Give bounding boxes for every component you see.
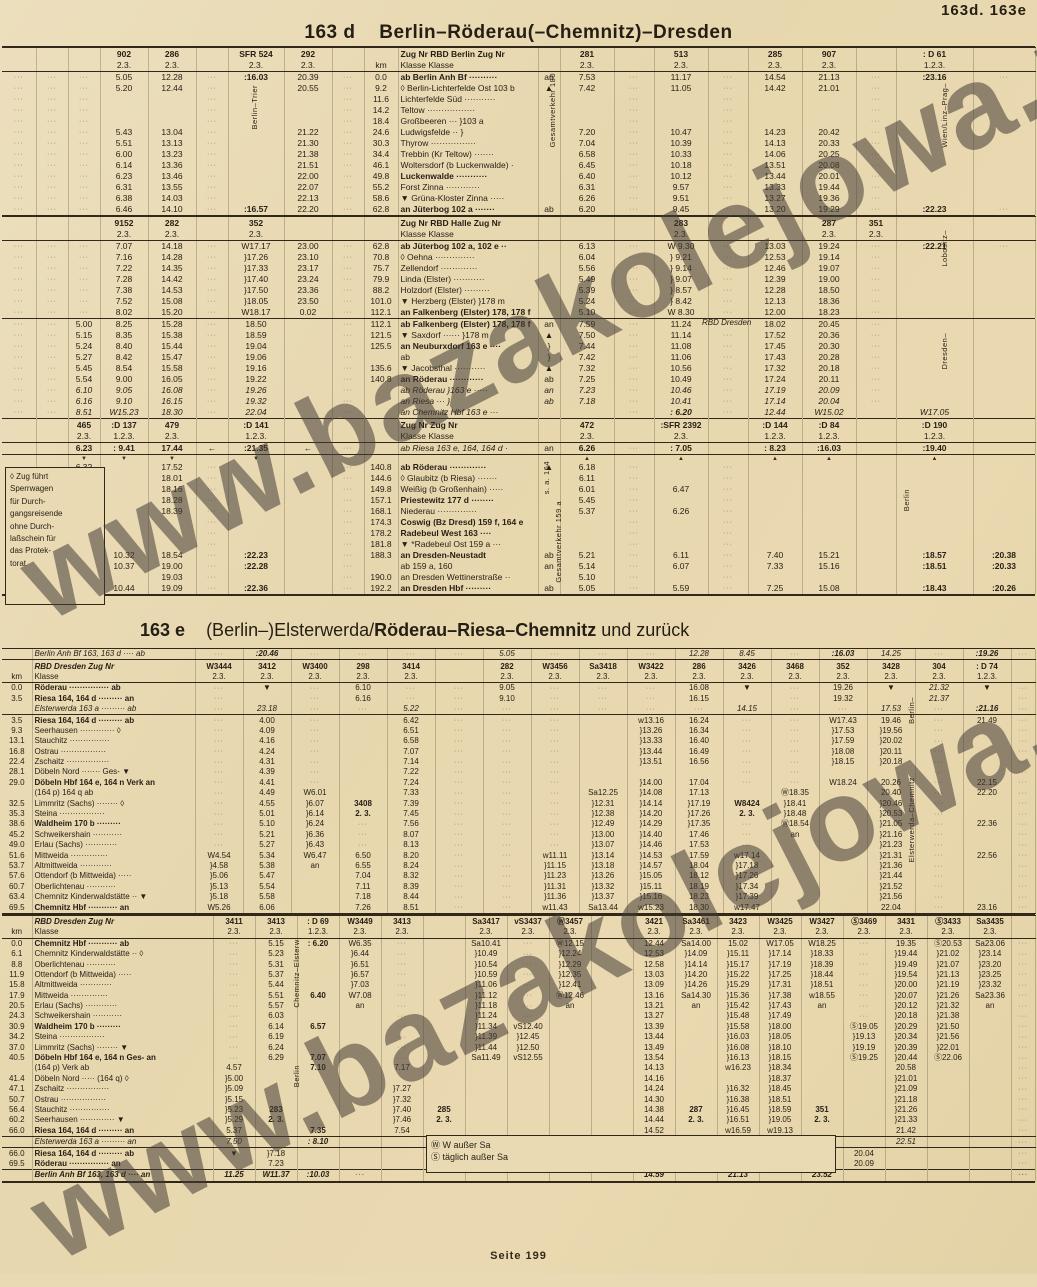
- table-row: km Klasse2.3.2.3.2.3.2.3.2.3.2.3.2.3.2.3…: [2, 672, 1035, 683]
- timetable-block-berlin-jueterbog: 902286SFR 524292Zug Nr RBD Berlin Zug Nr…: [2, 46, 1035, 215]
- table-row: ······174.3Coswig (Bz Dresd) 159 f, 164 …: [2, 517, 1035, 528]
- table-row: ·········6.3814.03···22.13···58.6▼ Grüna…: [2, 193, 1035, 204]
- margin-label: Gesamtverkehr 159 a: [554, 501, 563, 583]
- table-row: 6.4118.01······144.6◊ Glaubitz (b Riesa)…: [2, 473, 1035, 484]
- table-row: ·········5.4313.04···21.22···24.6Ludwigs…: [2, 127, 1035, 138]
- legend-note: Ⓦ W außer Sa Ⓢ täglich außer Sa: [426, 1135, 836, 1173]
- table-row: ······8.51W15.2318.30···22.04···an Chemn…: [2, 407, 1035, 419]
- table-row: 13.1Stauchitz ··················4.16···6…: [2, 736, 1035, 746]
- table-row: 11.9Ottendorf (b Mittweida) ········5.37…: [2, 970, 1035, 980]
- table-row: ·········6.0013.23···21.38···34.4Trebbin…: [2, 149, 1035, 160]
- table-row: 37.0Limmritz (Sachs) ········ ▼···6.24··…: [2, 1042, 1035, 1052]
- table-row: ·········7.2814.42···}17.4023.24···79.9L…: [2, 274, 1035, 285]
- table-row: 9.3Seerhausen ············· ◊···4.09···6…: [2, 726, 1035, 736]
- route-name-163e-main: Röderau–Riesa–Chemnitz: [374, 620, 596, 640]
- table-row: 35.3Steina ····················5.01}6.14…: [2, 809, 1035, 819]
- table-row: 40.5Döbeln Hbf 164 e, 164 n Ges- an···6.…: [2, 1053, 1035, 1063]
- table-row: 22.4Zschaitz ···················4.31···7…: [2, 757, 1035, 767]
- table-row: ······5.158.3515.38···18.59···121.5▼ Sax…: [2, 330, 1035, 341]
- table-row: 3.5Riesa 164, 164 d ········· an······6.…: [2, 694, 1035, 704]
- table-row: 60.2Seerhausen ············· ▼}5.292. 3.…: [2, 1115, 1035, 1125]
- table-row: ·········6.2313.46···22.00···49.8Luckenw…: [2, 171, 1035, 182]
- table-row: 51.6Mittweida ··············W4.545.34W6.…: [2, 850, 1035, 860]
- timetable-block-jueterbog-falkenberg: 9152282352Zug Nr RBD Halle Zug Nr2832873…: [2, 215, 1035, 318]
- table-row: 69.5Chemnitz Hbf ··········· anW5.266.06…: [2, 902, 1035, 913]
- protektorat-note: ◊ Zug führt Sperrwagen für Durch- gangsr…: [5, 467, 105, 605]
- table-row: 16.8Ostrau ····················4.24···7.…: [2, 747, 1035, 757]
- table-row: 6.3217.52······140.8ab Röderau ·········…: [2, 462, 1035, 473]
- table-row: ······5.549.0016.05···19.22···140.8an Rö…: [2, 374, 1035, 385]
- table-row: 63.4Chemnitz Kinderwaldstätte ·· ▼}5.185…: [2, 892, 1035, 902]
- table-row: 7.1818.39······168.1Niederau ···········…: [2, 506, 1035, 517]
- table-row: (164 p) 164 q ab···4.49W6.017.33········…: [2, 788, 1035, 798]
- table-row: 29.0Döbeln Hbf 164 e, 164 n Verk an···4.…: [2, 778, 1035, 788]
- table-row: ···············11.6Lichterfelde Süd ····…: [2, 94, 1035, 105]
- table-row: ······178.2Radebeul West 163 ··········: [2, 528, 1035, 539]
- margin-label: Lobositz–: [940, 230, 949, 267]
- route-name-163e-pre: (Berlin–)Elsterwerda/: [206, 620, 374, 640]
- table-row: 17.9Mittweida ·················5.516.40W…: [2, 991, 1035, 1001]
- table-row: ·········6.4614.10···:16.5722.20···62.8a…: [2, 204, 1035, 215]
- table-row: RBD Dresden Zug Nr34113413: D 69W3449341…: [2, 915, 1035, 927]
- table-row: 53.7Altmittweida ············}4.585.38an…: [2, 861, 1035, 871]
- table-row: 30.9Waldheim 170 b ············6.146.57·…: [2, 1022, 1035, 1032]
- route-name-163e-suffix: und zurück: [601, 620, 689, 640]
- table-row: ·········6.3113.55···22.07···55.2Forst Z…: [2, 182, 1035, 193]
- table-row: 3.5Riesa 164, 164 d ········· ab···4.00·…: [2, 715, 1035, 726]
- table-row: 50.7Ostrau ·················}5.15}7.3214…: [2, 1094, 1035, 1104]
- table-row: Berlin Anh Bf 163, 163 d ···· ab···:20.4…: [2, 649, 1035, 660]
- margin-label: Berlin: [292, 1065, 301, 1087]
- table-row: ·········7.1614.28···}17.2623.10···70.8◊…: [2, 252, 1035, 263]
- table-row: 902286SFR 524292Zug Nr RBD Berlin Zug Nr…: [2, 48, 1035, 61]
- table-row: 7.4910.4419.09···:22.36···192.2an Dresde…: [2, 583, 1035, 594]
- table-row: 32.5Limmritz (Sachs) ········ ◊···4.55}6…: [2, 798, 1035, 808]
- table-row: 465:D 137479:D 141Zug Nr Zug Nr472:SFR 2…: [2, 419, 1035, 432]
- table-row: 9152282352Zug Nr RBD Halle Zug Nr2832873…: [2, 217, 1035, 230]
- table-row: 38.6Waldheim 170 b ············5.10}6.24…: [2, 819, 1035, 829]
- route-name-163d: Berlin–Röderau(–Chemnitz)–Dresden: [379, 22, 732, 43]
- margin-label: Chemnitz–Elsterw.: [292, 937, 301, 1008]
- timetable-page: 163d. 163e 163 d Berlin–Röderau(–Chemnit…: [0, 0, 1037, 1274]
- route-number-163d: 163 d: [304, 22, 355, 43]
- table-row: 28.1Döbeln Nord ······· Ges- ▼···4.39···…: [2, 767, 1035, 777]
- table-row: 7.3310.3218.54···:22.23···188.3an Dresde…: [2, 550, 1035, 561]
- margin-label: Berlin–Trier: [250, 85, 259, 129]
- page-corner-label: 163d. 163e: [941, 2, 1027, 19]
- table-row: ···············14.2Teltow ··············…: [2, 105, 1035, 116]
- table-row: 60.7Oberlichtenau ···········}5.135.547.…: [2, 882, 1035, 892]
- table-row: 15.8Altmittweida ···············5.44}7.0…: [2, 980, 1035, 990]
- table-row: ·········7.2214.35···}17.3323.17···75.7Z…: [2, 263, 1035, 274]
- table-row: 0.0Chemnitz Hbf ··········· ab···5.15: 6…: [2, 938, 1035, 949]
- table-row: ·········8.0215.20···W18.170.02···112.1a…: [2, 307, 1035, 318]
- timetable-block-falkenberg-roederau: ······5.008.2515.28···18.50···112.1ab Fa…: [2, 318, 1035, 454]
- table-row: 41.4Döbeln Nord ····· (164 q) ◊}5.0014.1…: [2, 1074, 1035, 1084]
- table-row: ▼▼▼▼▲▲▲▲▲: [2, 455, 1035, 462]
- table-row: 2.3.1.2.3.2.3.1.2.3.Klasse Klasse2.3.2.3…: [2, 431, 1035, 443]
- table-row: (164 p) Verk ab4.577.107.1714.13w16.23}1…: [2, 1063, 1035, 1073]
- table-row: 56.4Stauchitz ···············}5.23283}7.…: [2, 1105, 1035, 1115]
- page-number: Seite 199: [0, 1250, 1037, 1262]
- table-row: ······181.8▼ *Radebeul Ost 159 a ·······…: [2, 539, 1035, 550]
- margin-label: s. a. 164: [542, 461, 551, 494]
- route-number-163e: 163 e: [140, 620, 185, 640]
- table-row: ······5.248.4015.44···19.04···125.5an Ne…: [2, 341, 1035, 352]
- timetable-block-riesa-chemnitz: Berlin Anh Bf 163, 163 d ···· ab···:20.4…: [2, 648, 1035, 914]
- table-row: 7.0818.28······157.1Priestewitz 177 d ··…: [2, 495, 1035, 506]
- margin-label: Elsterwerda–Chemnitz: [907, 777, 916, 862]
- table-row: ······5.458.5415.58···19.16···135.6▼ Jac…: [2, 363, 1035, 374]
- margin-label: Gesamtverkehr 180: [548, 73, 557, 147]
- table-row: ······6.169.1016.15···19.32···an Riesa ·…: [2, 396, 1035, 407]
- table-row: 34.2Steina ····················6.19···}1…: [2, 1032, 1035, 1042]
- table-row: ·········5.0512.28···:16.0320.39···0.0ab…: [2, 72, 1035, 84]
- margin-label: Dresden–: [940, 333, 949, 370]
- table-row: Elsterwerda 163 a ········· ab···23.18··…: [2, 704, 1035, 715]
- table-row: km Klasse2.3.2.3.1.2.3.2.3.2.3.2.3.2.3.2…: [2, 927, 1035, 938]
- table-row: 6.1Chemnitz Kinderwaldstätte ·· ◊···5.23…: [2, 949, 1035, 959]
- table-row: RBD Dresden Zug NrW34443412W340029834142…: [2, 660, 1035, 672]
- table-row: 24.3Schweikershain ··············6.03···…: [2, 1011, 1035, 1021]
- table-row: ···············18.4Großbeeren ··· }103 a…: [2, 116, 1035, 127]
- table-row: ······6.109.0516.08···19.26···ab Röderau…: [2, 385, 1035, 396]
- table-row: 49.0Erlau (Sachs) ···············5.27}6.…: [2, 840, 1035, 850]
- table-row: ······5.278.4215.47···19.06···ab}7.42···…: [2, 352, 1035, 363]
- table-row: 6.5618.16······149.8Weißig (b Großenhain…: [2, 484, 1035, 495]
- table-row: ·········5.5113.13···21.30···30.3Thyrow …: [2, 138, 1035, 149]
- table-row: ·········5.2012.44···20.55···9.2◊ Berlin…: [2, 83, 1035, 94]
- table-row: 0.0Röderau ··············· ab···▼···6.10…: [2, 683, 1035, 694]
- table-row: 7.3910.3719.00···:22.28···ab 159 a, 160a…: [2, 561, 1035, 572]
- table-row: 47.1Zschaitz ················}5.09}7.271…: [2, 1084, 1035, 1094]
- section-163e: Berlin Anh Bf 163, 163 d ···· ab···:20.4…: [0, 648, 1037, 1183]
- margin-label: RBD Dresden: [702, 318, 751, 327]
- timetable-block-chemnitz-roederau: Ⓦ W außer Sa Ⓢ täglich außer Sa RBD Dres…: [2, 914, 1035, 1183]
- table-row: ·········7.3814.53···}17.5023.36···88.2H…: [2, 285, 1035, 296]
- table-row: 45.2Schweikershain ··············5.21}6.…: [2, 830, 1035, 840]
- margin-label: Berlin–: [907, 697, 916, 724]
- table-row: 57.6Ottendorf (b Mittweida) ·····}5.065.…: [2, 871, 1035, 881]
- margin-label: Berlin: [902, 489, 911, 511]
- table-row: ·········7.5215.08···}18.0523.50···101.0…: [2, 296, 1035, 307]
- margin-label: Wien/Linz–Prag–: [940, 83, 949, 148]
- table-row: ······5.008.2515.28···18.50···112.1ab Fa…: [2, 319, 1035, 330]
- table-row: 7.4419.03······190.0an Dresden Wettiners…: [2, 572, 1035, 583]
- section-163e-title: 163 e (Berlin–)Elsterwerda/Röderau–Riesa…: [140, 620, 689, 641]
- table-row: ·········7.0714.18···W17.1723.00···62.8a…: [2, 241, 1035, 253]
- table-row: 2.3.2.3.2.3.Klasse Klasse2.3.2.3.2.3.: [2, 229, 1035, 241]
- timetable-block-roederau-dresden: ◊ Zug führt Sperrwagen für Durch- gangsr…: [2, 454, 1035, 596]
- section-163d-title: 163 d Berlin–Röderau(–Chemnitz)–Dresden: [0, 22, 1037, 44]
- table-row: 6.23: 9.4117.44←:21.35←···ab Riesa 163 e…: [2, 443, 1035, 455]
- section-163d: 902286SFR 524292Zug Nr RBD Berlin Zug Nr…: [0, 46, 1037, 596]
- table-row: 2.3.2.3.2.3.2.3.kmKlasse Klasse2.3.2.3.2…: [2, 60, 1035, 72]
- table-row: 8.8Oberlichtenau ··············5.31}6.51…: [2, 959, 1035, 969]
- table-row: 20.5Erlau (Sachs) ···············5.57an·…: [2, 1001, 1035, 1011]
- table-row: ·········6.1413.36···21.51···46.1Wolters…: [2, 160, 1035, 171]
